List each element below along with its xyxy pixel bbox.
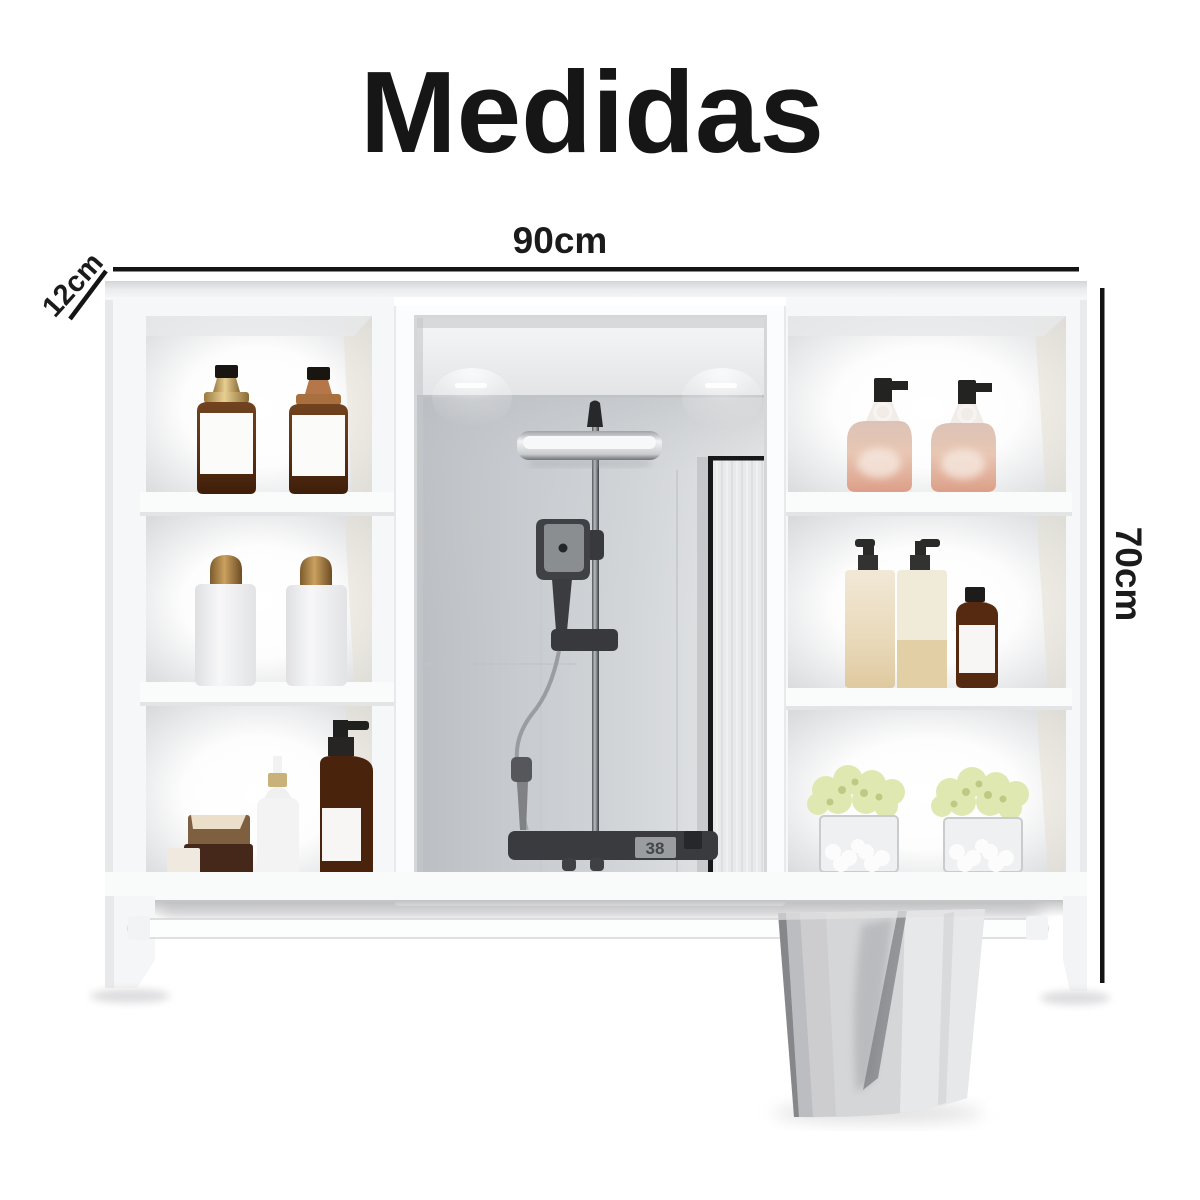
svg-text:70cm: 70cm — [1108, 527, 1149, 622]
svg-text:90cm: 90cm — [513, 220, 608, 261]
svg-text:Medidas: Medidas — [360, 47, 824, 177]
svg-text:38: 38 — [646, 839, 665, 858]
